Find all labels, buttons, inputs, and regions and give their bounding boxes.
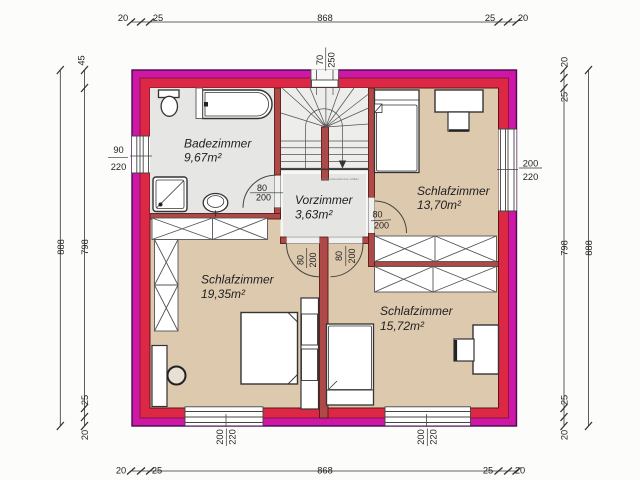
svg-text:250: 250 [327,52,337,68]
svg-text:220: 220 [523,172,539,182]
svg-text:80: 80 [296,255,306,265]
svg-text:200: 200 [347,248,357,263]
svg-text:868: 868 [317,466,333,476]
svg-text:45: 45 [77,55,87,65]
svg-text:80: 80 [257,183,267,193]
svg-text:200: 200 [374,221,389,231]
svg-text:888: 888 [56,239,66,255]
svg-text:25: 25 [483,466,493,476]
svg-text:80: 80 [372,210,382,220]
svg-text:Schlafzimmer: Schlafzimmer [201,273,275,287]
svg-text:9,67m²: 9,67m² [184,151,222,165]
svg-text:15,72m²: 15,72m² [380,319,425,333]
svg-text:200: 200 [256,193,271,203]
svg-text:20: 20 [118,13,128,23]
svg-text:868: 868 [317,13,333,23]
svg-text:Vorzimmer: Vorzimmer [295,193,354,207]
svg-text:220: 220 [429,429,439,445]
svg-text:20: 20 [560,430,570,440]
svg-text:200: 200 [308,252,318,267]
svg-text:Badezimmer: Badezimmer [184,137,252,151]
svg-text:25: 25 [560,395,570,405]
svg-text:Schlafzimmer: Schlafzimmer [380,304,454,318]
svg-text:3,63m²: 3,63m² [295,208,333,222]
svg-text:Schlafzimmer: Schlafzimmer [417,184,491,198]
svg-text:25: 25 [80,395,90,405]
svg-text:70: 70 [315,55,325,65]
svg-text:GSEducationalVersion GSEdu: GSEducationalVersion GSEdu [321,177,359,181]
svg-text:798: 798 [80,239,90,255]
svg-text:20: 20 [515,466,525,476]
svg-text:80: 80 [334,251,344,261]
svg-text:200: 200 [215,429,225,445]
svg-text:20: 20 [518,13,528,23]
svg-text:25: 25 [152,466,162,476]
svg-text:888: 888 [584,240,594,256]
svg-text:20: 20 [80,430,90,440]
svg-text:798: 798 [560,240,570,256]
svg-text:200: 200 [416,429,426,445]
svg-text:25: 25 [560,92,570,102]
svg-text:20: 20 [560,57,570,67]
svg-text:25: 25 [153,13,163,23]
svg-text:220: 220 [111,162,127,172]
svg-text:20: 20 [116,466,126,476]
svg-text:19,35m²: 19,35m² [201,287,246,301]
svg-text:220: 220 [228,429,238,445]
svg-text:200: 200 [523,159,539,169]
svg-text:13,70m²: 13,70m² [417,198,462,212]
svg-text:25: 25 [485,13,495,23]
svg-text:90: 90 [113,145,123,155]
